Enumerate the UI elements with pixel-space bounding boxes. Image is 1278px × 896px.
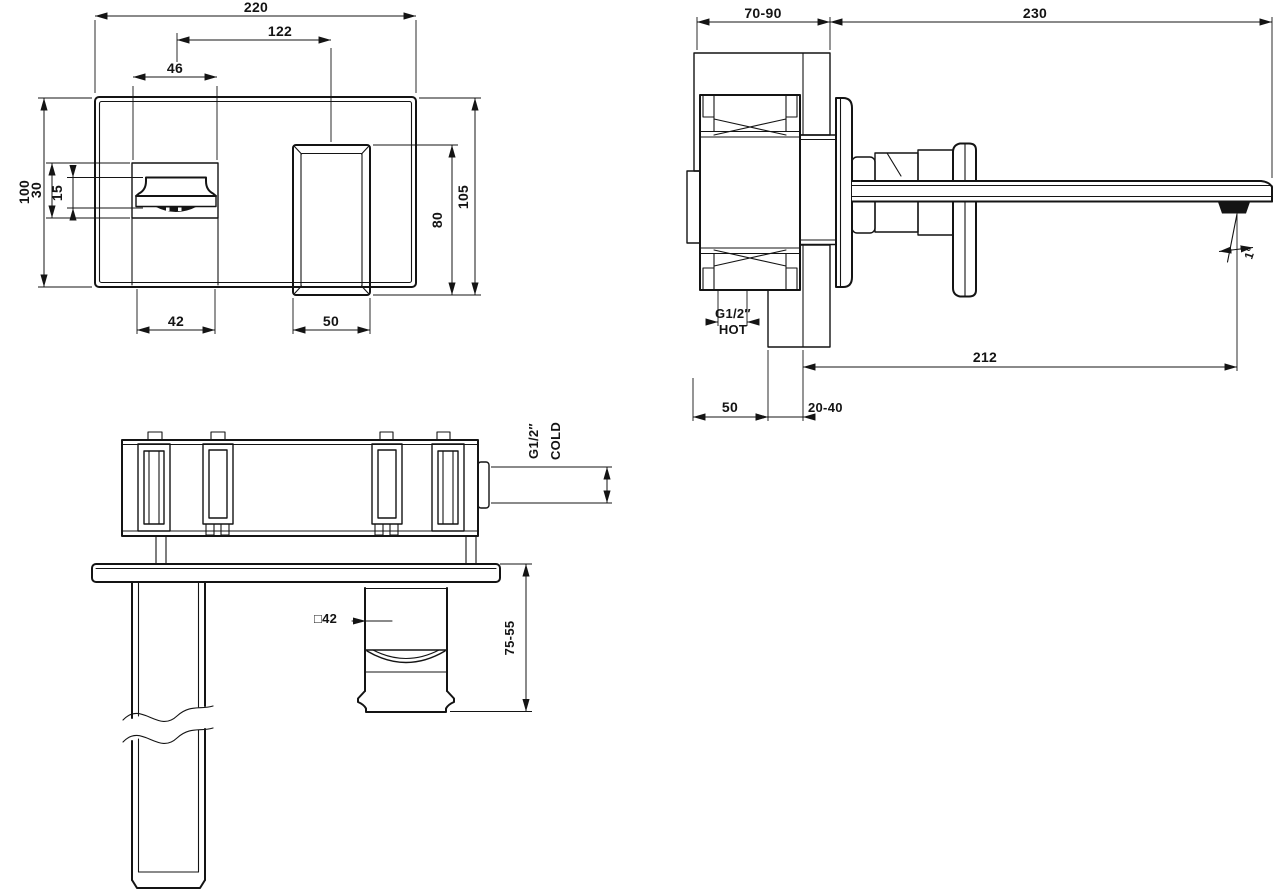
dim-spout-face-height: 15 — [49, 185, 65, 201]
side-dimensions: 70-90 230 212 1° 50 20-40 G1/2″ HOT — [693, 5, 1272, 421]
dim-handle-height: 80 — [429, 212, 445, 228]
dim-spout-width: 42 — [168, 313, 184, 329]
handle-plate-front — [293, 145, 370, 295]
side-view: 70-90 230 212 1° 50 20-40 G1/2″ HOT — [687, 5, 1272, 421]
dim-wall-depth-range: 70-90 — [744, 5, 781, 21]
dim-overall-height: 105 — [455, 185, 471, 209]
spout-side — [852, 181, 1272, 214]
aerator-front — [155, 207, 197, 213]
dim-centers-distance: 122 — [268, 23, 292, 39]
drawing-canvas: 220 122 46 100 30 15 — [0, 0, 1278, 896]
bracket-slot — [203, 444, 233, 535]
label-hot: HOT — [719, 322, 747, 337]
front-view: 220 122 46 100 30 15 — [16, 0, 481, 334]
dim-rough-in-depth: 50 — [722, 399, 738, 415]
label-cold-thread: G1/2″ — [526, 423, 541, 459]
bracket-slot — [432, 444, 464, 531]
technical-drawing: 220 122 46 100 30 15 — [0, 0, 1278, 896]
spout-tube-bottom — [123, 582, 213, 888]
trim-plate-side — [836, 98, 852, 287]
rough-in-body — [687, 95, 836, 290]
cold-connection-stub — [478, 462, 489, 508]
spout-front — [136, 178, 216, 213]
bracket-slot — [372, 444, 402, 535]
dim-spout-length: 230 — [1023, 5, 1047, 21]
dim-spout-drop-range: 75-55 — [502, 621, 517, 656]
label-cold: COLD — [548, 422, 563, 460]
dim-recess-height: 30 — [28, 182, 44, 198]
dim-finished-wall-range: 20-40 — [808, 400, 843, 415]
bracket-slot — [138, 444, 170, 531]
bottom-view: G1/2″ COLD □42 75-55 — [92, 422, 612, 888]
mounting-plate-front — [95, 97, 416, 287]
label-handle-square: □42 — [314, 611, 337, 626]
dim-spout-angle: 1° — [1241, 245, 1258, 261]
bottom-dimensions: G1/2″ COLD □42 75-55 — [314, 422, 612, 712]
dim-overall-width: 220 — [244, 0, 268, 15]
spout-aerator-side — [1218, 202, 1250, 214]
break-symbol — [123, 706, 213, 721]
handle-bottom — [358, 588, 454, 712]
break-symbol — [123, 728, 213, 743]
dim-spout-projection: 212 — [973, 349, 997, 365]
rough-in-box-top — [122, 440, 478, 536]
dim-handle-width: 50 — [323, 313, 339, 329]
dim-recess-width: 46 — [167, 60, 183, 76]
label-hot-thread: G1/2″ — [715, 306, 751, 321]
wall-plate-bottom — [92, 564, 500, 582]
